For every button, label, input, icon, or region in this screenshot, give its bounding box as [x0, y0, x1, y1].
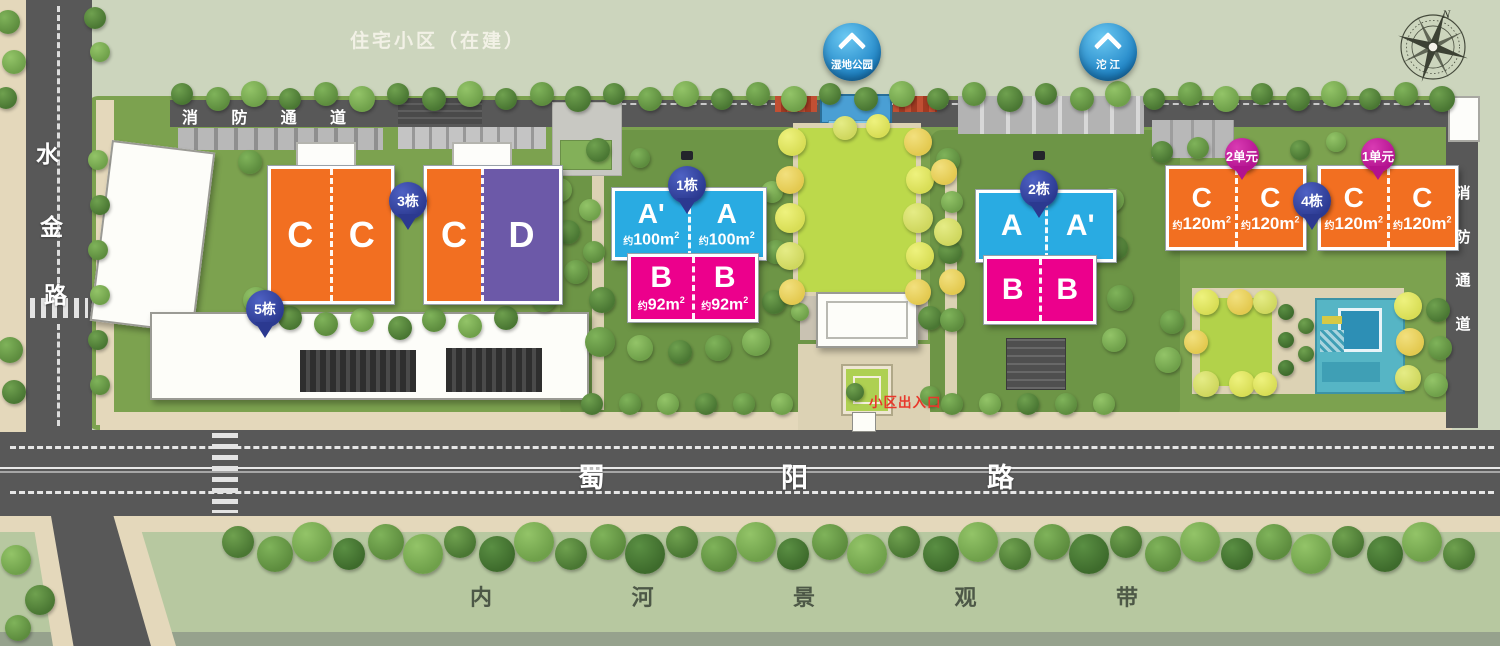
- south-sidewalk: [0, 516, 1500, 532]
- west-verge: [0, 0, 26, 432]
- road-char: 通: [1455, 269, 1470, 290]
- pin-building-5[interactable]: 5栋: [246, 290, 284, 348]
- clubhouse-wing: [800, 296, 816, 340]
- building-2-lower-block[interactable]: B B: [984, 256, 1096, 324]
- tree: [90, 42, 110, 62]
- gate-icon: [681, 151, 693, 160]
- unit-cell[interactable]: C: [271, 169, 330, 301]
- pin-tail: [255, 322, 275, 348]
- site-plan-map: 住宅小区（在建） 消 防 通 道 消 防 通 道 水 金 路 蜀 阳 路 内 河…: [0, 0, 1500, 646]
- pin-tail: [677, 198, 697, 224]
- pin-building-2[interactable]: 2栋: [1020, 170, 1058, 228]
- pool-steps: [1320, 330, 1344, 352]
- unit-letter: D: [509, 217, 535, 253]
- unit-area: 约120m2: [1241, 215, 1300, 232]
- center-line: [57, 324, 60, 426]
- building-1-lower-block[interactable]: B 约92m2 B 约92m2: [628, 254, 758, 322]
- carport-row: [398, 98, 482, 124]
- unit-letter: A': [638, 200, 665, 228]
- guard-booth: [852, 412, 876, 432]
- road-char: 通: [281, 104, 297, 128]
- unit-letter: C: [287, 217, 313, 253]
- compass-north-label: N: [1441, 8, 1451, 21]
- road-char: 消: [1455, 182, 1470, 203]
- unit-area: 约100m2: [623, 231, 679, 248]
- road-name-shuyang: 蜀: [578, 456, 605, 495]
- carport-row: [958, 96, 1144, 134]
- clubhouse-roof: [826, 301, 908, 339]
- gatehouse: [1448, 96, 1480, 142]
- pin-building-4[interactable]: 4栋: [1293, 182, 1331, 240]
- fire-lane-top-label: 消 防 通 道: [182, 104, 346, 128]
- unit-cell[interactable]: C 约120m2: [1387, 169, 1456, 247]
- path: [945, 160, 957, 410]
- pin-tail: [1302, 214, 1322, 240]
- road-name-shuyang: 路: [987, 456, 1014, 495]
- unit-letter: C: [1260, 184, 1280, 212]
- path: [592, 155, 604, 410]
- unit-letter: A': [1066, 211, 1095, 241]
- unit-cell[interactable]: B 约92m2: [631, 257, 692, 319]
- road-char: 内: [470, 580, 492, 612]
- pin-tail: [1369, 166, 1387, 189]
- road-char: 防: [231, 104, 247, 128]
- pin-building-1[interactable]: 1栋: [668, 166, 706, 224]
- building-5-tower[interactable]: [90, 140, 215, 333]
- building-3-east-block[interactable]: C D: [424, 166, 562, 304]
- pin-tail: [398, 214, 418, 240]
- pin-unit-2[interactable]: 2单元: [1225, 138, 1259, 189]
- road-name-shuijin: 水: [36, 135, 59, 169]
- unit-area: 约92m2: [638, 296, 685, 313]
- unit-cell[interactable]: B: [987, 259, 1039, 321]
- tuojiang-river-badge[interactable]: 沱 江: [1079, 23, 1137, 81]
- road-char: 消: [182, 104, 198, 128]
- road-name-shuyang: 阳: [781, 456, 808, 495]
- unit-area: 约100m2: [699, 231, 755, 248]
- fire-lane-right-label: 消 防 通 道: [1452, 182, 1474, 334]
- road-char: 道: [1455, 313, 1470, 334]
- utility-building: [1006, 338, 1066, 390]
- road-char: 道: [330, 104, 346, 128]
- entrance-label: 小区出入口: [869, 391, 942, 411]
- road-name-shuijin: 路: [44, 276, 67, 310]
- road-char: 防: [1455, 226, 1470, 247]
- garage-ramp: [300, 350, 416, 392]
- unit-cell[interactable]: D: [481, 169, 559, 301]
- road-char: 观: [954, 580, 976, 612]
- adjacent-site-label: 住宅小区（在建）: [350, 26, 526, 53]
- arrow-up-icon: [1094, 32, 1122, 60]
- unit-letter: B: [650, 263, 672, 293]
- flower-bed: [775, 96, 817, 112]
- central-lawn: [798, 128, 916, 292]
- road-name-shuijin: 金: [40, 208, 63, 242]
- unit-cell[interactable]: B: [1039, 259, 1094, 321]
- kids-pool: [1322, 362, 1380, 382]
- unit-letter: B: [1002, 275, 1024, 305]
- crosswalk: [212, 433, 238, 513]
- unit-area: 约120m2: [1325, 215, 1384, 232]
- road-char: 景: [793, 580, 815, 612]
- pool-lounge: [1322, 316, 1342, 324]
- clubhouse[interactable]: [816, 292, 918, 348]
- unit-letter: C: [1412, 184, 1432, 212]
- unit-letter: C: [349, 217, 375, 253]
- unit-letter: A: [717, 200, 737, 228]
- wetland-park-badge[interactable]: 湿地公园: [823, 23, 881, 81]
- pin-building-3[interactable]: 3栋: [389, 182, 427, 240]
- site-south-walk: [100, 412, 1452, 432]
- unit-cell[interactable]: C: [330, 169, 392, 301]
- pin-tail: [1233, 166, 1251, 189]
- unit-letter: C: [1192, 184, 1212, 212]
- building-3-west-block[interactable]: C C: [268, 166, 394, 304]
- swimming-pool: [1338, 308, 1382, 352]
- unit-letter: B: [714, 263, 736, 293]
- unit-area: 约92m2: [701, 296, 748, 313]
- road-char: 带: [1116, 580, 1138, 612]
- pin-unit-1[interactable]: 1单元: [1361, 138, 1395, 189]
- unit-cell[interactable]: B 约92m2: [692, 257, 756, 319]
- flower-bed: [893, 96, 937, 112]
- garden-lawn: [1200, 298, 1272, 386]
- pin-tail: [1029, 202, 1049, 228]
- river-edge-strip: [0, 632, 1500, 646]
- unit-area: 约120m2: [1393, 215, 1452, 232]
- unit-letter: B: [1056, 275, 1078, 305]
- unit-letter: C: [441, 217, 467, 253]
- riverfront-label: 内 河 景 观 带: [470, 580, 1138, 612]
- planter: [560, 140, 612, 170]
- garage-ramp: [446, 348, 542, 392]
- gate-icon: [1033, 151, 1045, 160]
- road-char: 河: [631, 580, 653, 612]
- unit-cell[interactable]: C: [427, 169, 481, 301]
- arrow-up-icon: [838, 32, 866, 60]
- unit-area: 约120m2: [1173, 215, 1232, 232]
- compass-rose-icon: N: [1394, 8, 1472, 86]
- carport-row: [1152, 120, 1234, 158]
